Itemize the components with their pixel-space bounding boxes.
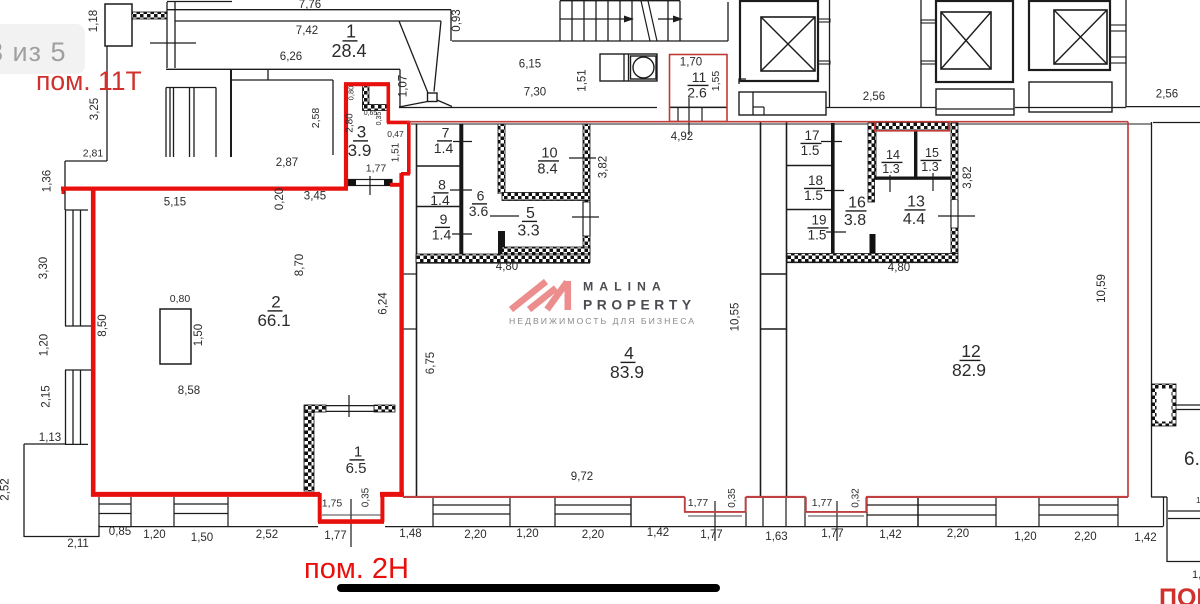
svg-text:2,81: 2,81: [83, 148, 104, 160]
svg-text:1,51: 1,51: [577, 69, 589, 91]
svg-text:17: 17: [804, 128, 819, 143]
svg-text:MALINA: MALINA: [583, 280, 667, 294]
svg-text:8,50: 8,50: [97, 314, 109, 336]
svg-text:1,42: 1,42: [879, 529, 901, 541]
svg-text:1,77: 1,77: [688, 497, 709, 509]
svg-text:2,20: 2,20: [582, 529, 604, 541]
svg-text:28.4: 28.4: [331, 41, 366, 61]
svg-text:3 из 5: 3 из 5: [0, 37, 67, 67]
svg-text:1,20: 1,20: [39, 334, 51, 356]
svg-text:PROPERTY: PROPERTY: [583, 298, 696, 313]
svg-text:1: 1: [354, 444, 362, 461]
svg-text:2,87: 2,87: [276, 157, 298, 169]
svg-text:1,42: 1,42: [1134, 532, 1156, 544]
svg-text:0,47: 0,47: [387, 129, 404, 139]
svg-text:пом. 2Н: пом. 2Н: [304, 553, 409, 585]
svg-text:7,30: 7,30: [524, 87, 546, 99]
svg-text:5: 5: [526, 205, 535, 222]
svg-text:7,76: 7,76: [299, 0, 321, 11]
svg-text:0,32: 0,32: [851, 488, 862, 508]
svg-text:1,55: 1,55: [710, 71, 722, 92]
svg-text:2,56: 2,56: [863, 91, 885, 103]
svg-text:1.3: 1.3: [882, 162, 899, 176]
svg-text:6,24: 6,24: [378, 292, 390, 315]
svg-text:2,52: 2,52: [0, 478, 12, 500]
svg-text:3,82: 3,82: [598, 156, 610, 178]
svg-text:2: 2: [271, 293, 280, 312]
svg-text:1,50: 1,50: [191, 532, 213, 544]
svg-text:8,70: 8,70: [294, 254, 306, 276]
svg-text:1,20: 1,20: [1014, 531, 1036, 543]
svg-text:2,20: 2,20: [1074, 531, 1096, 543]
svg-text:1.4: 1.4: [432, 227, 452, 243]
svg-text:6: 6: [477, 188, 485, 204]
svg-text:83.9: 83.9: [610, 362, 644, 382]
svg-text:2,58: 2,58: [310, 108, 322, 129]
svg-text:6.3: 6.3: [1184, 449, 1200, 470]
svg-text:5,15: 5,15: [164, 197, 186, 209]
svg-text:11: 11: [692, 69, 707, 85]
svg-text:ПОМ.: ПОМ.: [1159, 584, 1200, 604]
svg-text:2.6: 2.6: [687, 85, 707, 101]
svg-text:4.4: 4.4: [903, 211, 925, 228]
svg-text:1,77: 1,77: [700, 529, 722, 541]
svg-text:82.9: 82.9: [952, 360, 986, 380]
svg-text:1,4: 1,4: [1192, 569, 1200, 581]
svg-text:1,07: 1,07: [398, 75, 410, 97]
svg-text:2,52: 2,52: [256, 529, 278, 541]
svg-text:1,77: 1,77: [366, 163, 387, 175]
svg-text:7: 7: [442, 125, 450, 141]
svg-text:3: 3: [357, 123, 366, 142]
svg-text:4,92: 4,92: [671, 131, 693, 143]
svg-text:16: 16: [848, 195, 866, 212]
svg-text:0,35: 0,35: [361, 487, 372, 507]
svg-text:3.3: 3.3: [517, 223, 539, 240]
svg-text:8.4: 8.4: [537, 162, 557, 178]
svg-text:1,50: 1,50: [193, 324, 205, 346]
svg-text:1,77: 1,77: [812, 497, 833, 509]
svg-text:3.6: 3.6: [469, 203, 489, 219]
svg-text:0,35: 0,35: [727, 488, 738, 508]
svg-text:0,20: 0,20: [274, 188, 286, 210]
svg-text:2,11: 2,11: [67, 538, 89, 550]
svg-text:8,58: 8,58: [178, 385, 200, 397]
svg-text:1.5: 1.5: [804, 188, 823, 203]
svg-text:2,20: 2,20: [464, 529, 486, 541]
svg-text:1,20: 1,20: [516, 528, 538, 540]
svg-text:6.5: 6.5: [346, 460, 367, 477]
svg-text:6,75: 6,75: [425, 352, 437, 374]
svg-text:4: 4: [624, 343, 634, 363]
svg-text:2,56: 2,56: [1156, 89, 1178, 101]
svg-text:0,93: 0,93: [451, 9, 463, 31]
svg-text:2,20: 2,20: [947, 528, 969, 540]
svg-text:1,48: 1,48: [399, 528, 421, 540]
svg-text:2,80: 2,80: [345, 113, 356, 133]
svg-text:0,35: 0,35: [376, 112, 383, 126]
svg-text:9: 9: [440, 211, 448, 227]
svg-text:18: 18: [808, 173, 823, 188]
svg-text:13: 13: [907, 194, 925, 211]
svg-text:3,82: 3,82: [962, 166, 974, 188]
svg-text:3,30: 3,30: [38, 257, 50, 279]
svg-text:1,77: 1,77: [324, 530, 346, 542]
svg-text:3.9: 3.9: [348, 141, 372, 160]
svg-text:1,42: 1,42: [647, 527, 669, 539]
svg-text:6,15: 6,15: [519, 59, 541, 71]
svg-text:10: 10: [541, 146, 557, 162]
svg-text:1,63: 1,63: [765, 531, 787, 543]
svg-text:4,80: 4,80: [888, 262, 910, 274]
svg-text:6,26: 6,26: [280, 51, 302, 63]
svg-text:3,45: 3,45: [304, 191, 326, 203]
svg-text:1,36: 1,36: [42, 170, 54, 192]
svg-text:12: 12: [961, 341, 980, 361]
svg-text:8: 8: [438, 177, 446, 193]
svg-text:1.5: 1.5: [808, 228, 827, 243]
svg-text:15: 15: [925, 146, 939, 160]
svg-text:0,85: 0,85: [109, 526, 131, 538]
svg-text:10,59: 10,59: [1096, 274, 1108, 303]
svg-text:9,72: 9,72: [571, 471, 593, 483]
svg-text:1.4: 1.4: [434, 140, 454, 156]
svg-text:0,80: 0,80: [347, 86, 356, 101]
svg-text:7,42: 7,42: [296, 25, 318, 37]
svg-text:1.5: 1.5: [801, 143, 820, 158]
svg-text:1,70: 1,70: [680, 57, 702, 69]
svg-text:1,20: 1,20: [143, 529, 165, 541]
svg-text:4,80: 4,80: [496, 261, 518, 273]
svg-text:НЕДВИЖИМОСТЬ ДЛЯ БИЗНЕСА: НЕДВИЖИМОСТЬ ДЛЯ БИЗНЕСА: [509, 316, 696, 326]
svg-text:3.8: 3.8: [844, 212, 866, 229]
svg-text:19: 19: [811, 213, 826, 228]
svg-text:1: 1: [346, 22, 356, 42]
svg-text:1,77: 1,77: [821, 528, 843, 540]
svg-text:1,0: 1,0: [1196, 496, 1200, 505]
svg-text:2,15: 2,15: [41, 385, 53, 407]
svg-text:1,51: 1,51: [391, 142, 402, 162]
svg-text:0,80: 0,80: [170, 293, 191, 305]
svg-text:1.3: 1.3: [921, 160, 938, 174]
svg-text:1,75: 1,75: [322, 498, 343, 510]
svg-text:1,18: 1,18: [88, 10, 100, 32]
svg-text:66.1: 66.1: [257, 311, 290, 330]
svg-text:10,55: 10,55: [730, 303, 742, 332]
svg-text:1,13: 1,13: [39, 432, 61, 444]
svg-text:14: 14: [886, 148, 900, 162]
svg-text:3,25: 3,25: [89, 98, 101, 120]
svg-text:1.4: 1.4: [430, 192, 450, 208]
